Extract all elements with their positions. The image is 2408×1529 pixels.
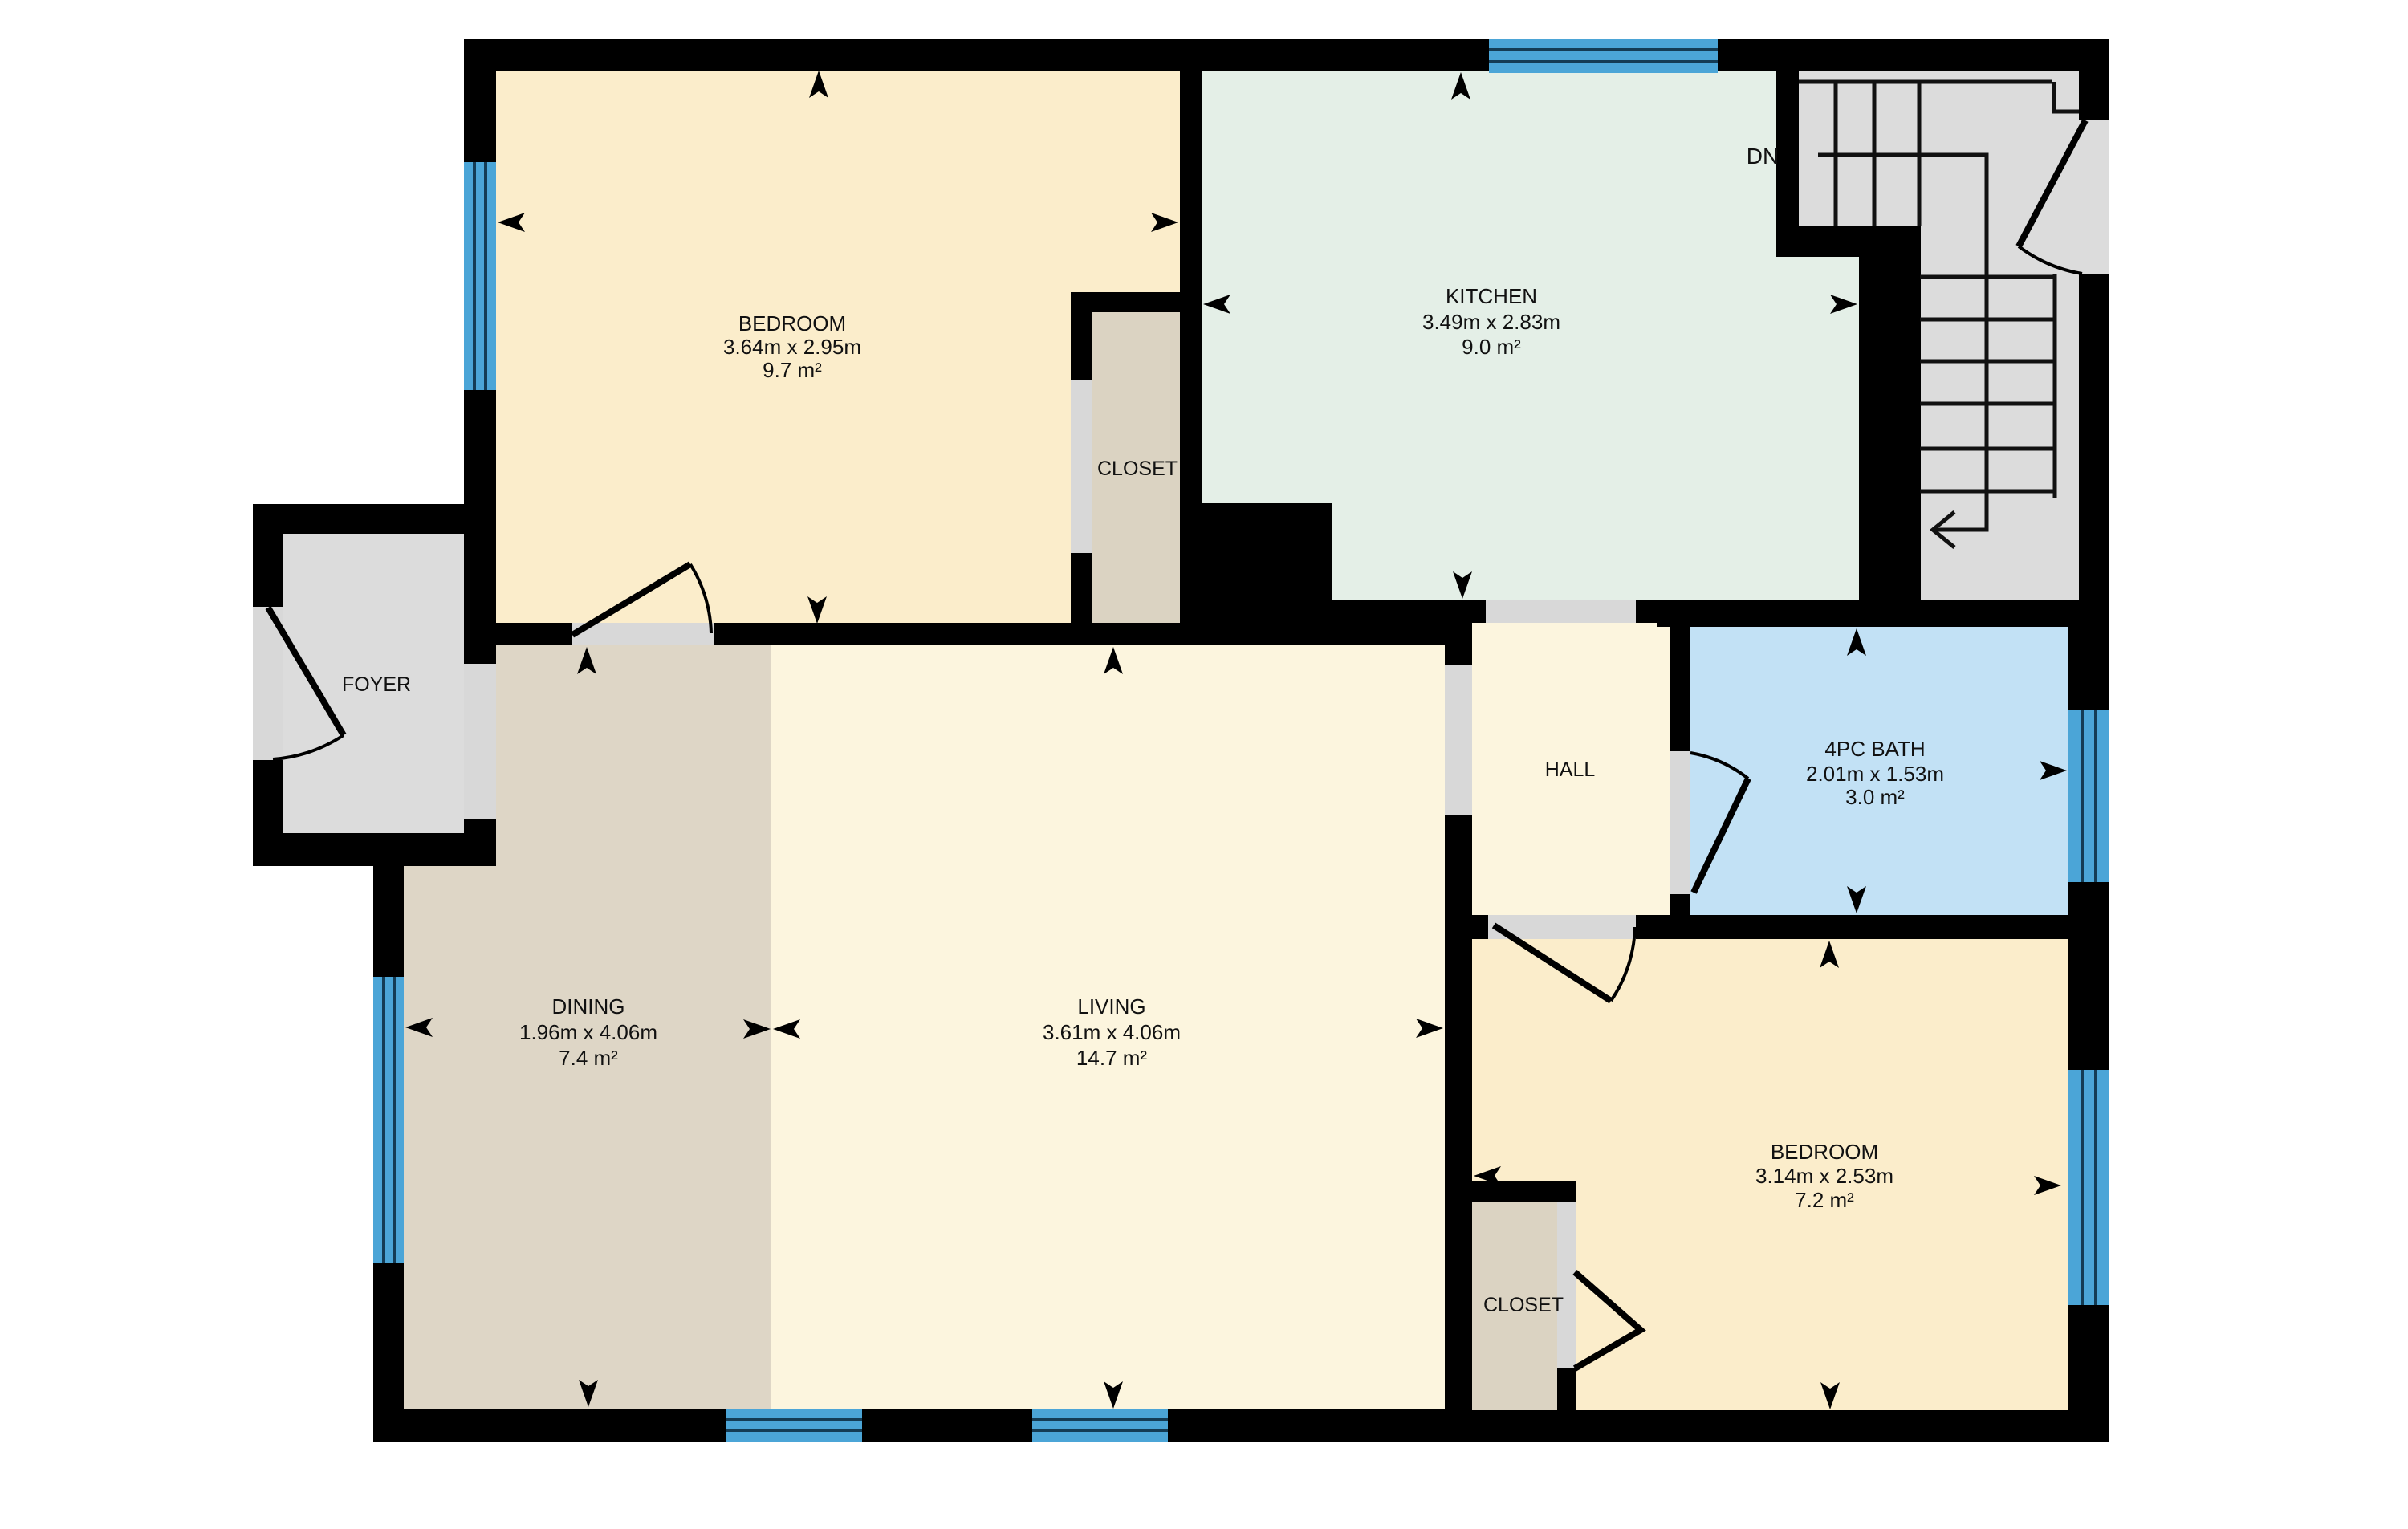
svg-text:3.64m x 2.95m: 3.64m x 2.95m	[723, 335, 861, 359]
svg-text:HALL: HALL	[1545, 758, 1596, 781]
svg-text:BEDROOM: BEDROOM	[738, 311, 846, 335]
svg-text:DN: DN	[1747, 144, 1779, 169]
svg-text:7.4 m²: 7.4 m²	[559, 1046, 618, 1070]
svg-text:14.7 m²: 14.7 m²	[1076, 1046, 1147, 1070]
svg-text:4PC BATH: 4PC BATH	[1824, 737, 1925, 761]
svg-text:BEDROOM: BEDROOM	[1771, 1140, 1878, 1164]
svg-text:7.2 m²: 7.2 m²	[1795, 1188, 1854, 1212]
svg-text:CLOSET: CLOSET	[1483, 1294, 1564, 1316]
svg-text:3.14m x 2.53m: 3.14m x 2.53m	[1755, 1164, 1893, 1188]
svg-text:9.7 m²: 9.7 m²	[763, 358, 822, 382]
svg-text:FOYER: FOYER	[342, 673, 411, 696]
svg-text:3.0 m²: 3.0 m²	[1845, 785, 1905, 809]
svg-text:LIVING: LIVING	[1077, 994, 1145, 1019]
svg-text:3.49m x 2.83m: 3.49m x 2.83m	[1422, 310, 1560, 334]
svg-text:1.96m x 4.06m: 1.96m x 4.06m	[519, 1020, 657, 1044]
svg-text:3.61m x 4.06m: 3.61m x 4.06m	[1043, 1020, 1181, 1044]
svg-text:CLOSET: CLOSET	[1097, 457, 1178, 480]
svg-text:DINING: DINING	[552, 994, 625, 1019]
svg-text:KITCHEN: KITCHEN	[1446, 284, 1537, 308]
svg-text:9.0 m²: 9.0 m²	[1462, 335, 1521, 359]
svg-text:2.01m x 1.53m: 2.01m x 1.53m	[1806, 762, 1944, 786]
